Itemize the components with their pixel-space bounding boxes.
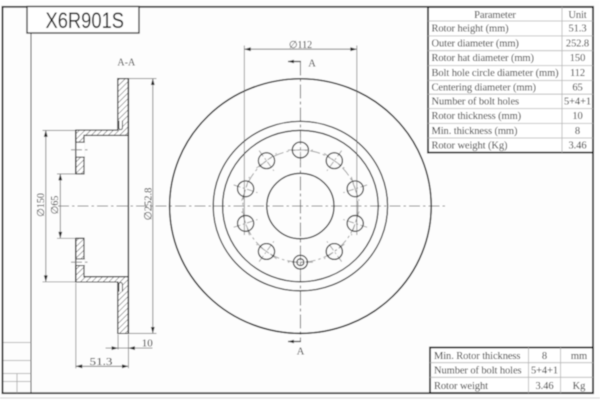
svg-text:Rotor hat diameter (mm): Rotor hat diameter (mm) <box>432 53 535 64</box>
svg-text:Min. Rotor thickness: Min. Rotor thickness <box>434 351 520 362</box>
svg-text:∅252.8: ∅252.8 <box>143 188 154 221</box>
svg-text:Min. thickness (mm): Min. thickness (mm) <box>432 126 518 137</box>
svg-text:A-A: A-A <box>117 58 136 69</box>
svg-text:∅65: ∅65 <box>50 196 61 215</box>
svg-text:A: A <box>297 347 305 358</box>
svg-text:10: 10 <box>572 111 582 122</box>
svg-text:Number of bolt holes: Number of bolt holes <box>434 366 522 377</box>
svg-text:Number of bolt holes: Number of bolt holes <box>432 97 520 108</box>
svg-text:8: 8 <box>575 126 580 137</box>
svg-text:X6R901S: X6R901S <box>46 8 125 33</box>
svg-text:Kg: Kg <box>573 381 586 392</box>
svg-text:Rotor weight (Kg): Rotor weight (Kg) <box>432 140 508 151</box>
svg-text:∅150: ∅150 <box>36 193 47 217</box>
svg-text:Rotor weight: Rotor weight <box>434 381 488 392</box>
svg-text:mm: mm <box>571 351 587 362</box>
svg-text:Rotor thickness (mm): Rotor thickness (mm) <box>432 111 522 122</box>
svg-text:112: 112 <box>570 68 585 79</box>
svg-text:Unit: Unit <box>568 10 586 21</box>
svg-text:∅112: ∅112 <box>289 40 312 51</box>
svg-text:65: 65 <box>572 82 582 93</box>
svg-text:150: 150 <box>570 53 585 64</box>
svg-text:Centering diameter (mm): Centering diameter (mm) <box>432 82 537 93</box>
svg-text:Outer diameter (mm): Outer diameter (mm) <box>432 38 520 49</box>
svg-text:10: 10 <box>142 338 154 350</box>
svg-text:Parameter: Parameter <box>474 10 516 21</box>
svg-text:51.3: 51.3 <box>569 24 587 35</box>
svg-text:3.46: 3.46 <box>569 140 587 151</box>
svg-text:5+4+1: 5+4+1 <box>564 97 591 108</box>
svg-text:5+4+1: 5+4+1 <box>531 366 558 377</box>
svg-text:8: 8 <box>542 351 547 362</box>
svg-text:252.8: 252.8 <box>566 38 589 49</box>
svg-text:A: A <box>308 59 316 70</box>
svg-text:Bolt hole circle diameter (mm): Bolt hole circle diameter (mm) <box>432 68 560 79</box>
svg-text:Rotor height (mm): Rotor height (mm) <box>432 24 510 35</box>
svg-text:51.3: 51.3 <box>90 356 114 368</box>
svg-text:3.46: 3.46 <box>536 381 554 392</box>
